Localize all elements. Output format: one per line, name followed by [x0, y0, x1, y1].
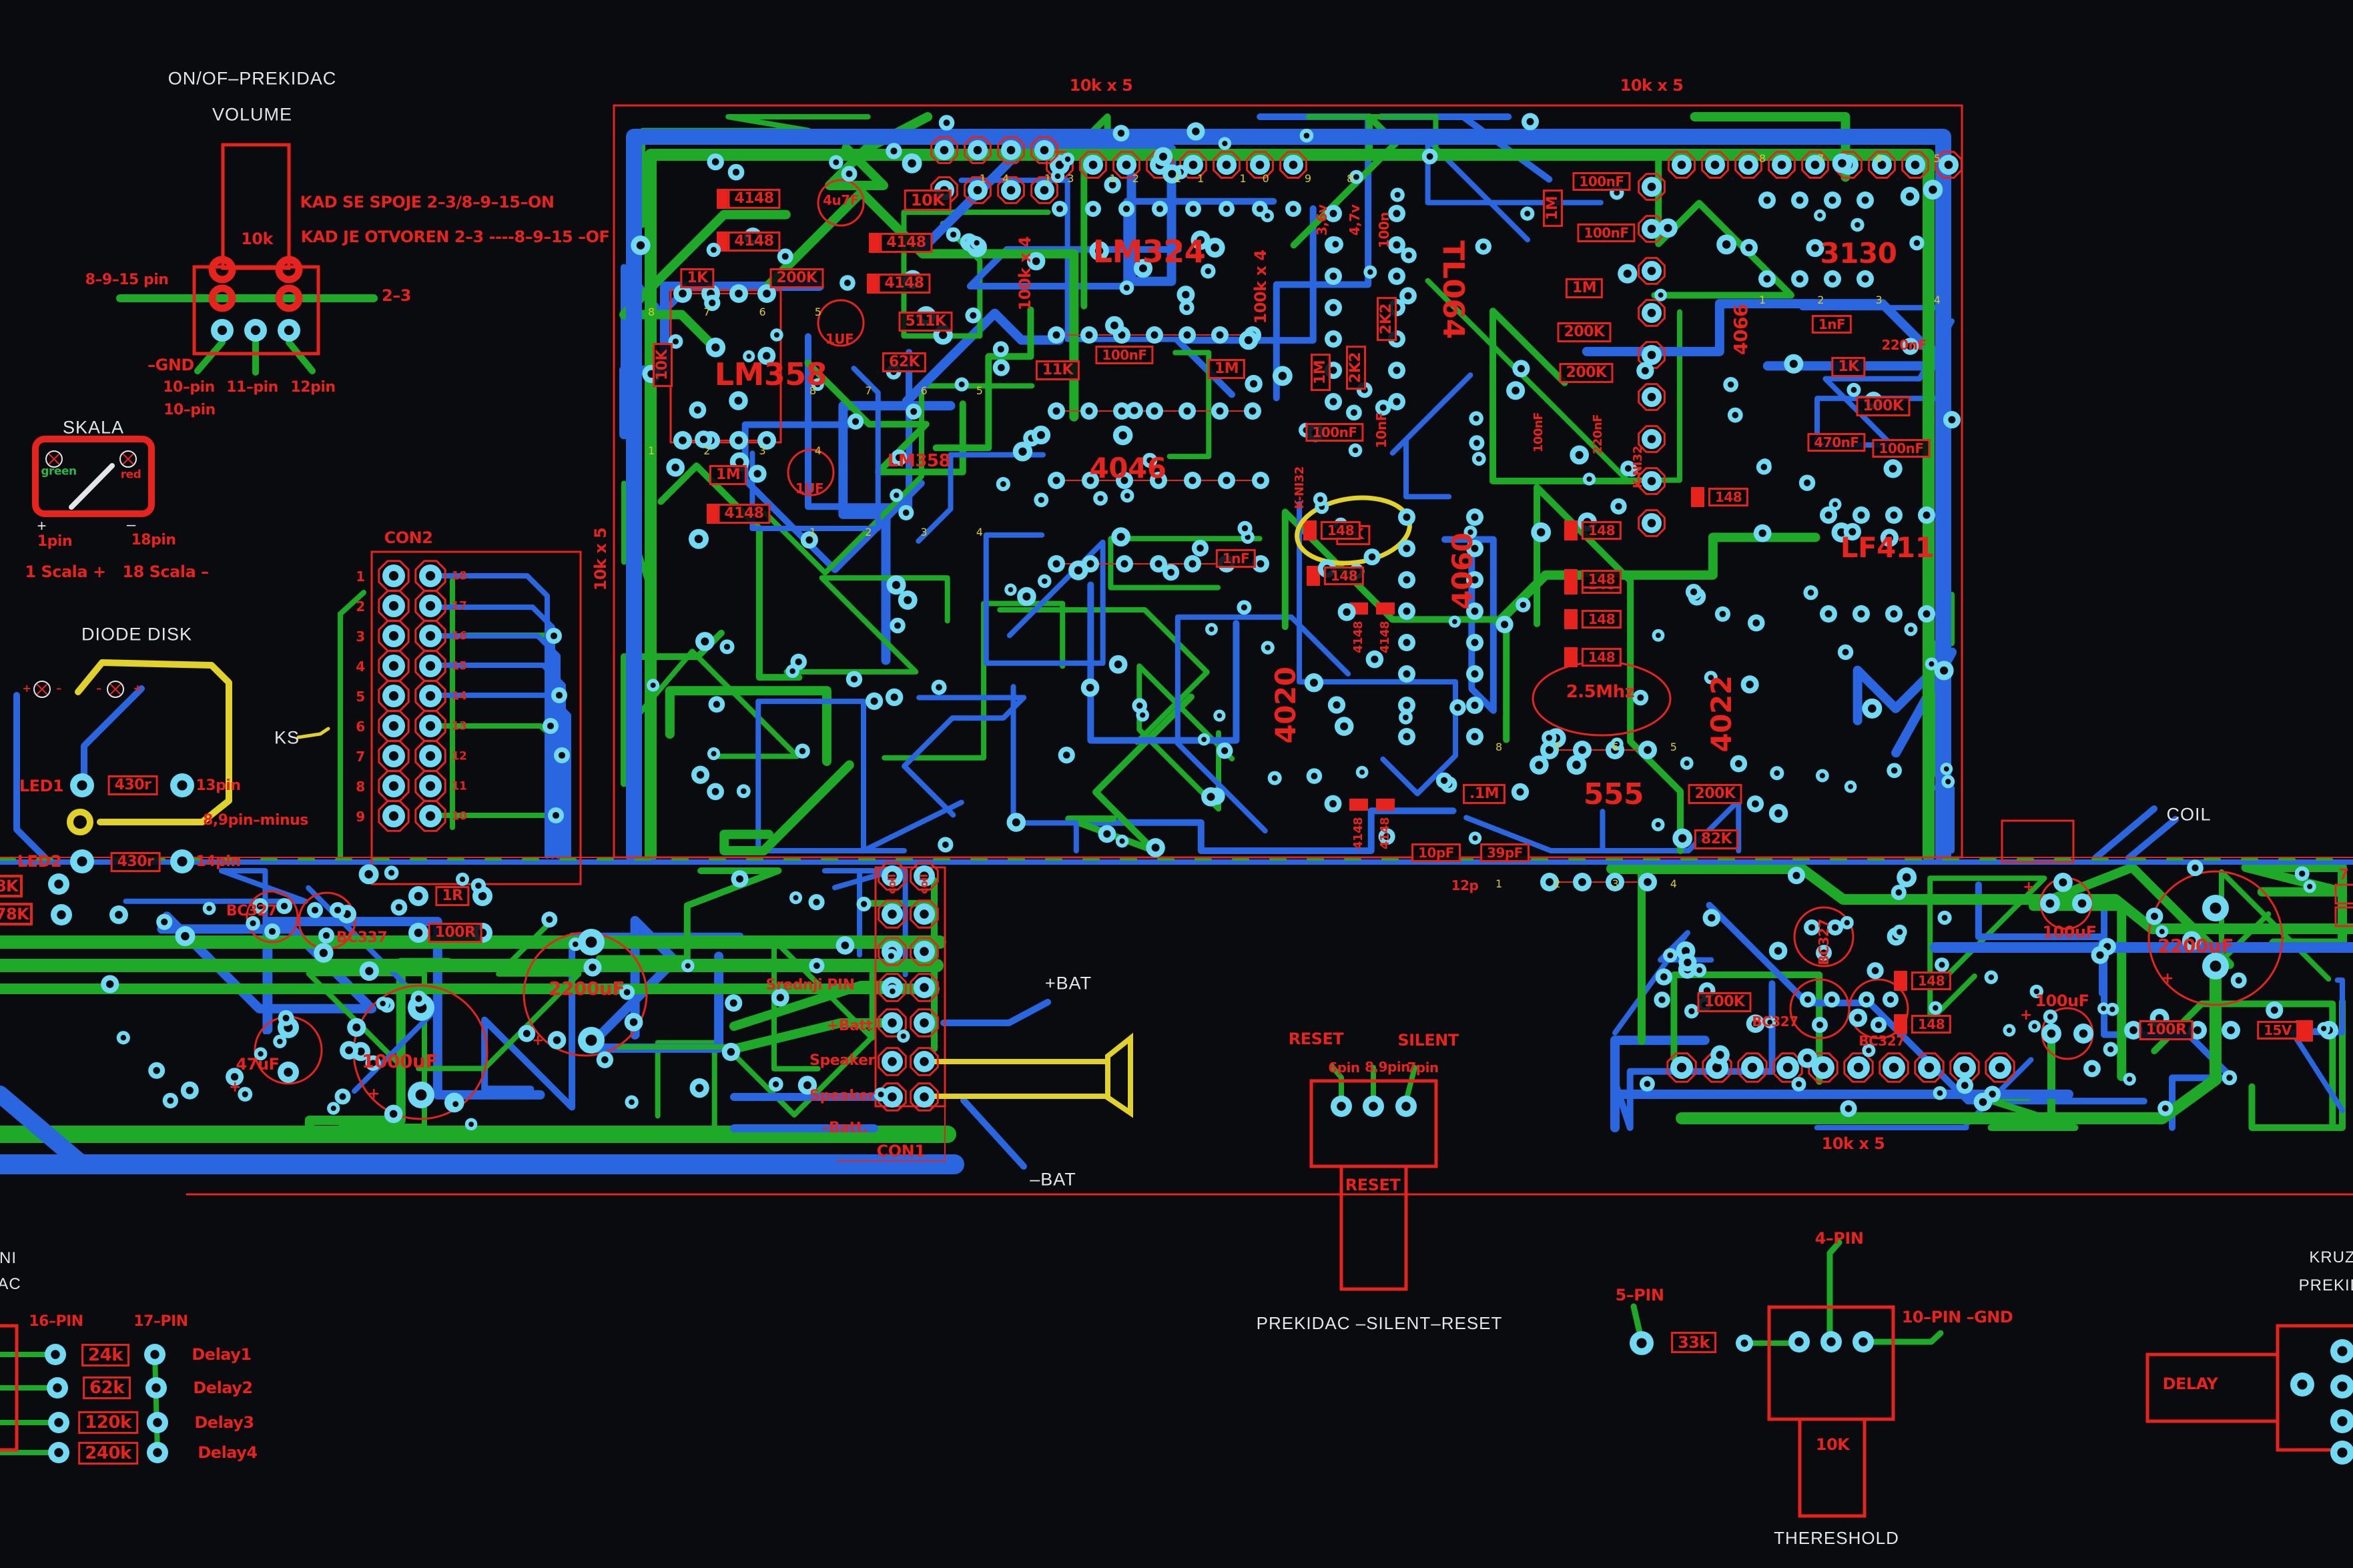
- pcb-layout-canvas: ON/OF–PREKIDACVOLUMESKALADIODE DISKKS+BA…: [0, 0, 2353, 1568]
- pcb-artwork: [0, 0, 2353, 1568]
